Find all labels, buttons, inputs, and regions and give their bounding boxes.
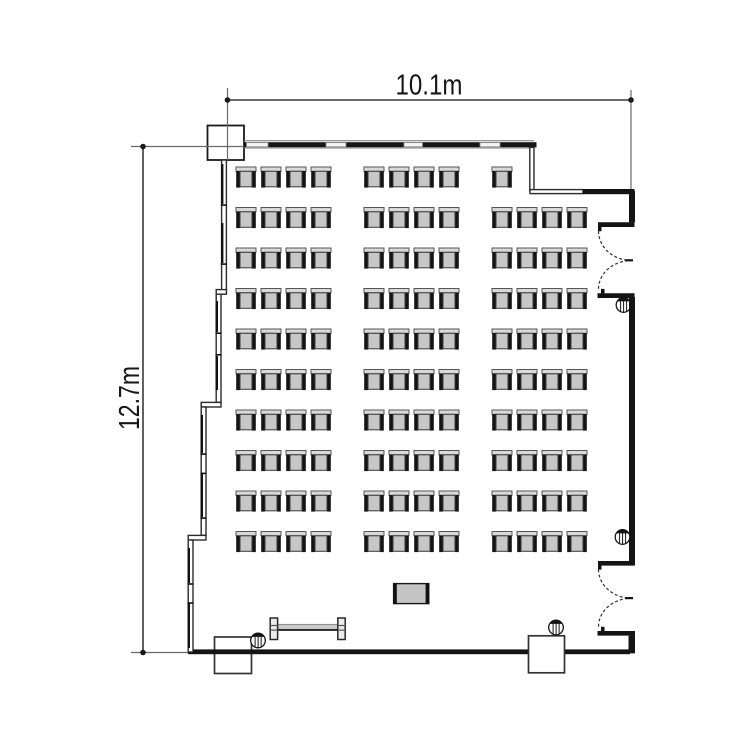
svg-text:10.1m: 10.1m xyxy=(396,70,463,102)
svg-text:12.7m: 12.7m xyxy=(114,366,146,430)
